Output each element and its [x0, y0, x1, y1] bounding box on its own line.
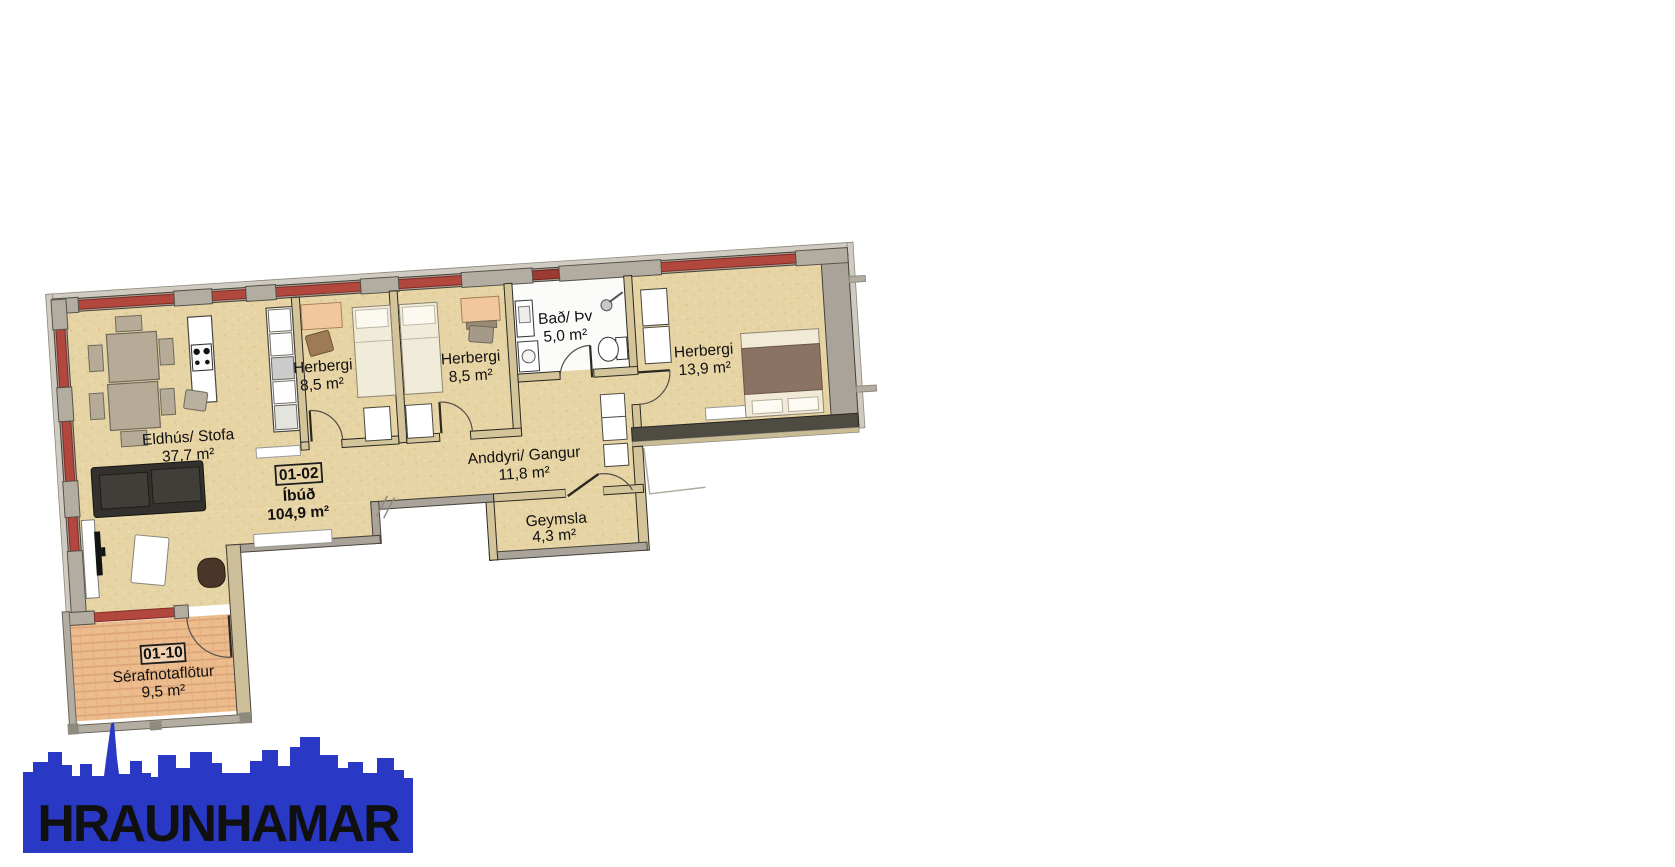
outdoor-tag-area: 9,5 m²: [141, 682, 186, 702]
wall-pier: [174, 605, 189, 619]
wall-bath-master: [632, 404, 641, 427]
window-strip: [68, 517, 79, 552]
window-strip: [212, 289, 247, 300]
pillow: [355, 308, 388, 328]
wardrobe: [406, 404, 434, 439]
pillow: [402, 305, 435, 325]
logo-text: HRAUNHAMAR: [37, 795, 400, 853]
outdoor-tag-code: 01-10: [143, 644, 184, 664]
wall-pier: [57, 387, 74, 422]
stool: [183, 389, 208, 411]
floor-plan-drawing: Eldhús/ Stofa 37,7 m² Herbergi 8,5 m² He…: [0, 0, 1675, 867]
window-strip: [532, 269, 560, 280]
room-area-bedroom2: 8,5 m²: [448, 366, 493, 386]
room-area-hall: 11,8 m²: [498, 464, 550, 484]
terrace-post: [239, 712, 252, 724]
chair: [115, 315, 142, 332]
unit-tag-code: 01-02: [278, 465, 319, 485]
room-area-bedroom1: 8,5 m²: [300, 375, 345, 395]
chair: [159, 338, 175, 365]
chair: [160, 388, 176, 415]
floor-plan-page: Eldhús/ Stofa 37,7 m² Herbergi 8,5 m² He…: [0, 0, 1675, 867]
coffee-table: [131, 535, 169, 586]
terrace-post: [149, 721, 162, 731]
hall-closet: [603, 443, 628, 467]
wall-stub: [856, 385, 876, 392]
sofa-cushion: [99, 472, 149, 509]
room-area-storage: 4,3 m²: [532, 526, 577, 546]
stove: [191, 344, 213, 371]
wall-bedroom1-bottom: [301, 442, 309, 450]
wall-pier: [795, 248, 848, 266]
bed-blanket: [742, 344, 823, 395]
wall-pier: [174, 289, 213, 306]
room-label-bathroom: Bað/ Þv: [538, 308, 594, 328]
kitchen-cabinet: [273, 381, 296, 404]
room-area-kitchen-living: 37,7 m²: [162, 445, 216, 465]
wall-pier: [63, 481, 80, 518]
radiator-sill: [256, 445, 301, 458]
apartment-plan: Eldhús/ Stofa 37,7 m² Herbergi 8,5 m² He…: [40, 241, 896, 736]
kitchen-cabinet: [274, 404, 298, 429]
desk: [461, 296, 500, 322]
wall-pier: [51, 299, 68, 330]
wardrobe: [364, 406, 392, 441]
desk: [301, 302, 343, 330]
tv-stand: [101, 547, 106, 556]
corridor-outline: [644, 444, 706, 494]
dining-table: [108, 381, 161, 430]
pillow: [752, 399, 783, 414]
kitchen-sink: [271, 357, 294, 380]
chair: [89, 393, 105, 420]
washing-machine-door: [522, 349, 536, 363]
pillow: [788, 397, 819, 412]
terrace-post: [67, 723, 79, 735]
sink-basin: [518, 306, 530, 323]
unit-tag-name: Íbúð: [282, 486, 316, 505]
wardrobe: [641, 288, 669, 326]
room-area-bathroom: 5,0 m²: [543, 326, 588, 346]
wall-pier: [246, 285, 277, 302]
kitchen-cabinet: [268, 309, 291, 332]
wardrobe: [643, 326, 671, 364]
desk-chair: [469, 326, 494, 344]
dining-table: [106, 331, 159, 382]
pouf: [197, 557, 226, 588]
room-area-master-bedroom: 13,9 m²: [678, 359, 732, 379]
chair: [88, 345, 104, 372]
kitchen-cabinet: [270, 333, 293, 356]
wall-stub: [849, 275, 865, 282]
hraunhamar-logo: HRAUNHAMAR: [23, 722, 413, 853]
sofa-cushion: [151, 467, 201, 504]
